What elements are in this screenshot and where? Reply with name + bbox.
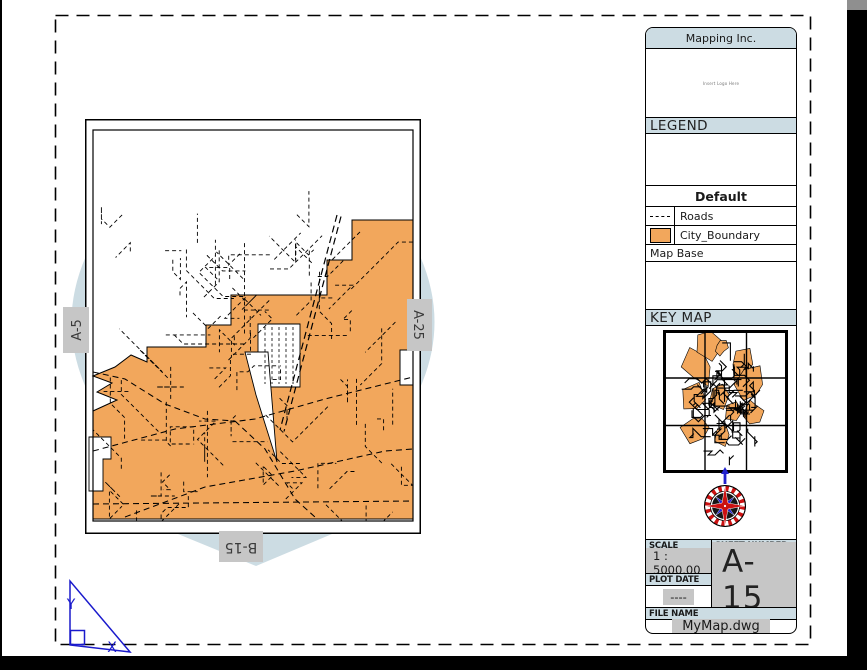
legend-map-base-row: Map Base (646, 244, 796, 261)
paper-shadow-bottom (0, 656, 867, 670)
city-boundary-fill-symbol (650, 228, 671, 243)
company-name: Mapping Inc. (686, 32, 756, 45)
paper-edge-left (0, 0, 2, 656)
legend-map-base-label: Map Base (650, 247, 704, 260)
ucs-x-axis-label: X (107, 640, 117, 656)
plot-date-value: ---- (663, 589, 694, 605)
legend-swatch-cell (646, 226, 675, 244)
adjacent-sheet-arrow-right (420, 256, 435, 388)
keymap-title: KEY MAP (650, 310, 712, 326)
plot-date-header: PLOT DATE (646, 573, 712, 586)
legend-label-city-boundary: City_Boundary (675, 229, 760, 242)
legend-label-roads: Roads (675, 210, 713, 223)
legend-swatch-cell (646, 207, 675, 225)
compass-hub-dot (724, 505, 726, 507)
plot-date-header-label: PLOT DATE (649, 575, 699, 585)
logo-area: Insert Logo Here (646, 49, 796, 117)
paper-shadow-cap (847, 0, 867, 10)
adjacent-sheet-arrow-left (72, 256, 87, 388)
legend-title: LEGEND (650, 118, 708, 134)
adjacent-sheet-arrow-bottom (178, 534, 332, 566)
key-map-image[interactable] (663, 330, 788, 473)
file-name-value: MyMap.dwg (672, 619, 770, 634)
file-name-header-label: FILE NAME (649, 609, 698, 619)
legend-group-name: Default (695, 189, 747, 204)
plot-date-value-cell: ---- (646, 586, 712, 607)
title-block: Mapping Inc. Insert Logo Here LEGEND Def… (645, 27, 797, 634)
legend-row-roads: Roads (646, 206, 796, 225)
logo-placeholder: Insert Logo Here (703, 81, 739, 86)
map-viewport[interactable] (85, 119, 421, 534)
sheet-number-cell: A-15 (712, 552, 796, 607)
file-name-cell: MyMap.dwg (646, 620, 796, 633)
legend-section-header: LEGEND (646, 117, 796, 134)
legend-group-header: Default (646, 186, 796, 206)
roads-line-symbol (650, 216, 670, 217)
ucs-y-axis-label: Y (66, 597, 76, 613)
scale-value-cell: 1 : 5000.00 (646, 552, 712, 573)
compass-rose (702, 467, 748, 529)
legend-table: Default Roads City_Boundary Map Base (646, 185, 796, 262)
north-needle-icon (721, 467, 729, 474)
north-needle-shaft (724, 473, 727, 484)
paper-shadow-right (847, 10, 867, 670)
ucs-triangle (70, 581, 130, 652)
company-header: Mapping Inc. (646, 28, 796, 49)
ucs-origin-square (71, 631, 85, 645)
paper-space-ucs-icon: Y X (66, 581, 130, 656)
keymap-section-header: KEY MAP (646, 309, 796, 326)
legend-row-city-boundary: City_Boundary (646, 225, 796, 244)
layout-paper: Y X A-5 A-25 B-15 Mapping Inc. Insert Lo… (0, 0, 867, 670)
